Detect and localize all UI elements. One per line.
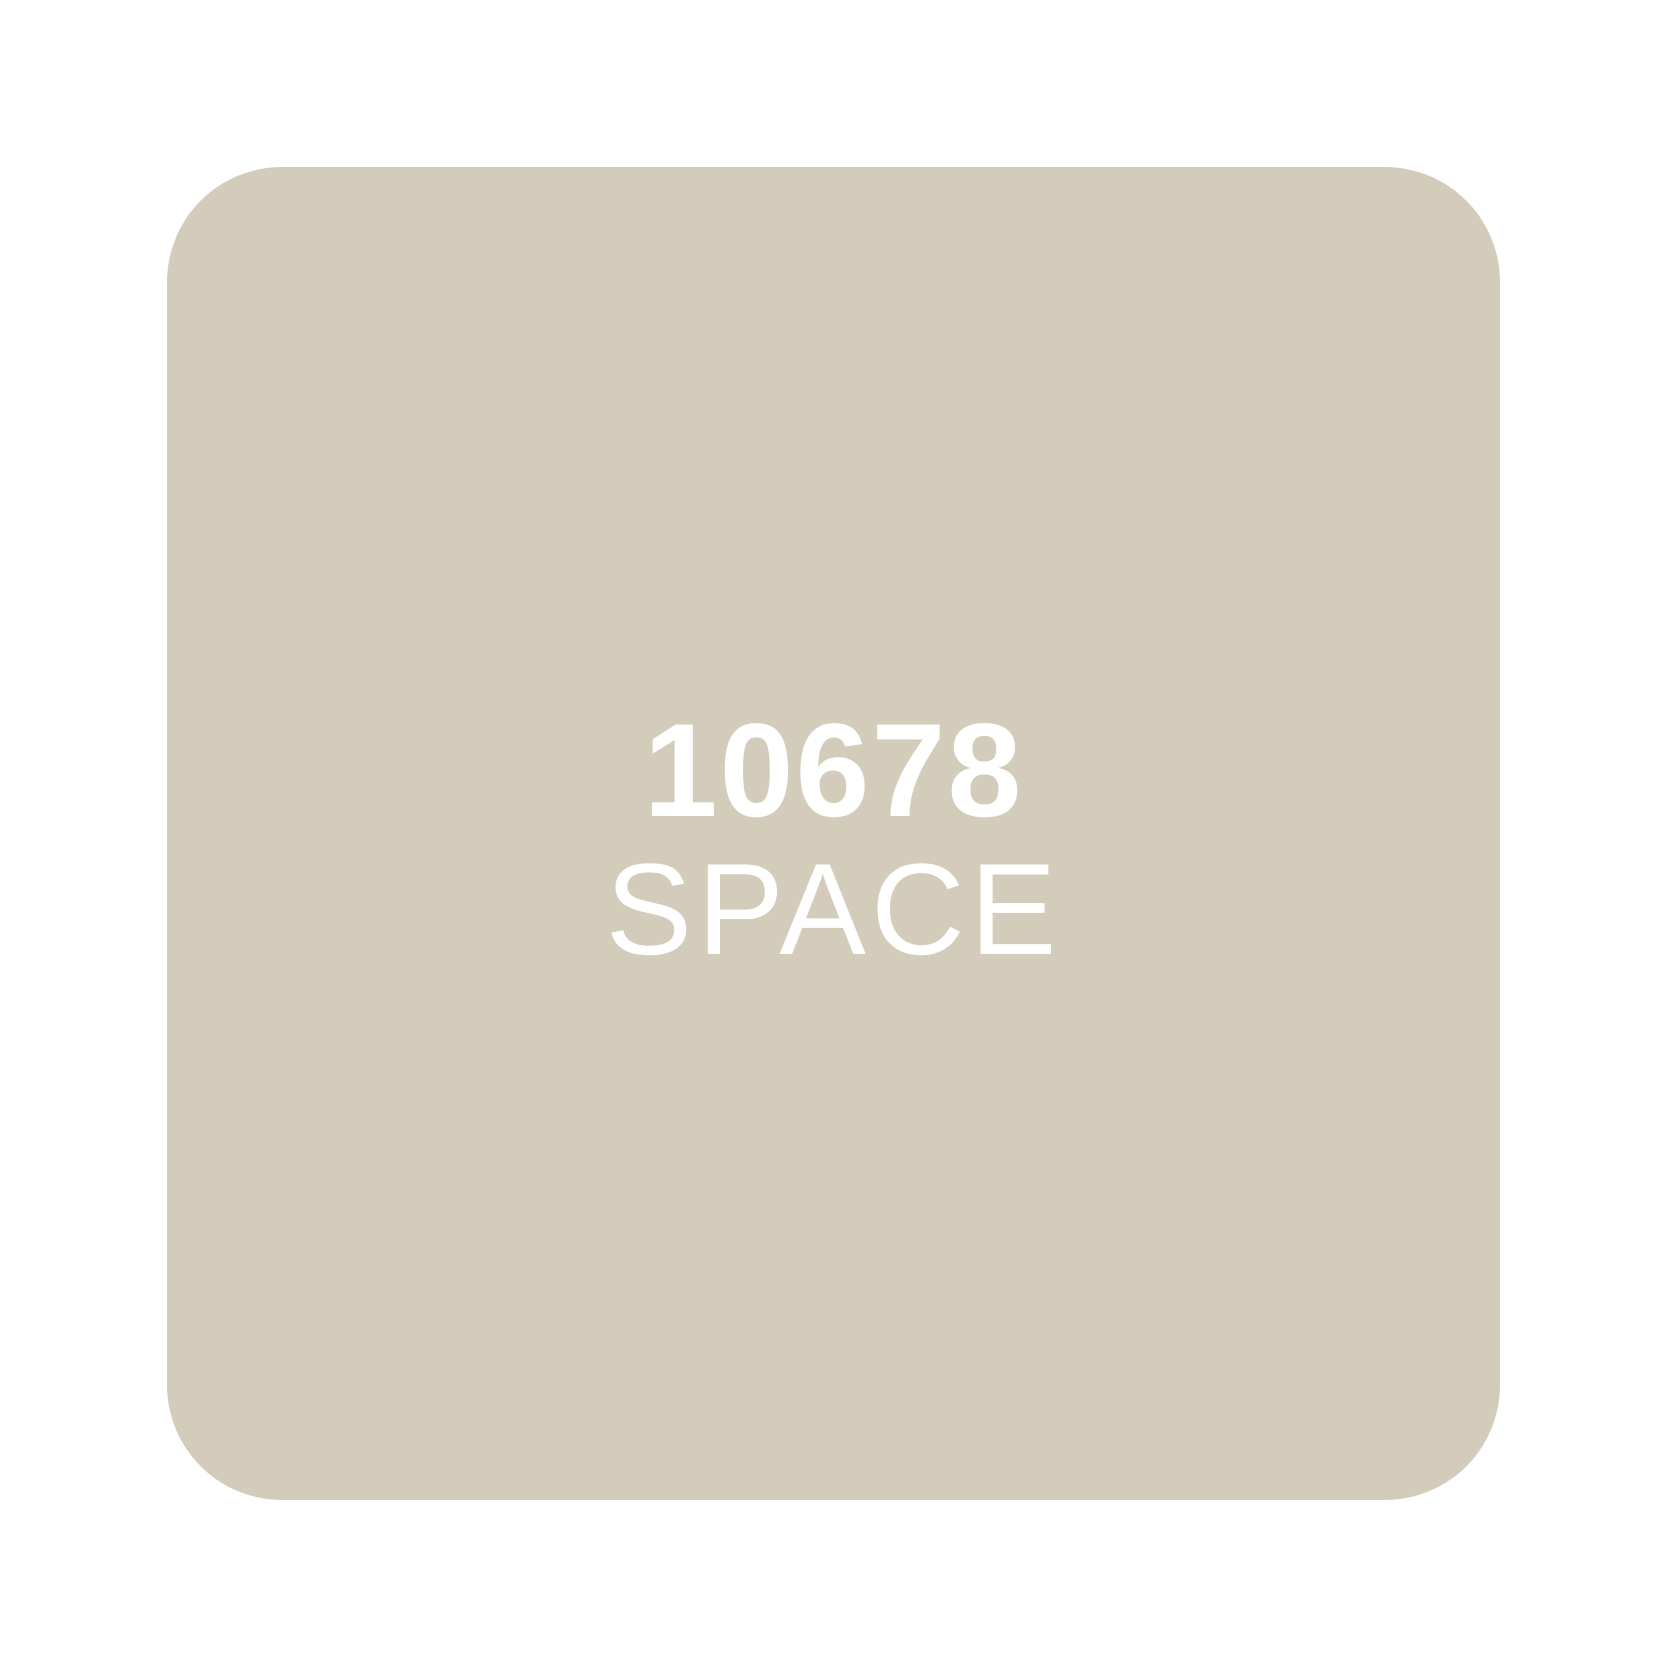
color-code: 10678 bbox=[644, 705, 1024, 838]
color-name: SPACE bbox=[605, 844, 1061, 974]
swatch-label-block: 10678 SPACE bbox=[605, 705, 1061, 974]
page-background: 10678 SPACE bbox=[0, 0, 1667, 1667]
color-swatch: 10678 SPACE bbox=[167, 167, 1500, 1500]
